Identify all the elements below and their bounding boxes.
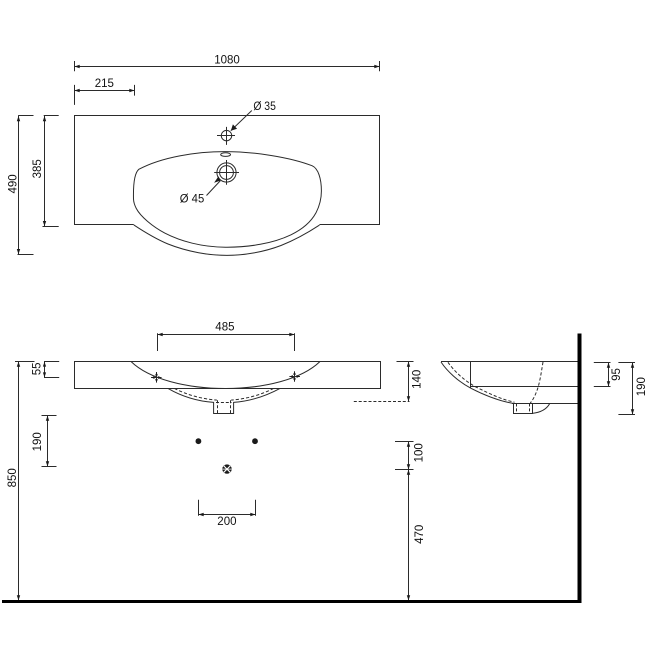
svg-text:215: 215 [95,78,114,90]
svg-text:485: 485 [215,322,234,334]
svg-text:200: 200 [217,516,236,528]
svg-text:Ø 35: Ø 35 [253,101,276,113]
svg-text:190: 190 [636,377,648,396]
svg-text:55: 55 [32,363,44,376]
svg-text:850: 850 [7,468,19,487]
svg-text:95: 95 [611,368,623,381]
svg-text:490: 490 [7,174,19,193]
svg-text:140: 140 [412,370,424,389]
svg-text:190: 190 [32,432,44,451]
svg-text:470: 470 [414,525,426,544]
svg-text:1080: 1080 [214,54,240,66]
svg-text:Ø 45: Ø 45 [180,194,205,206]
svg-text:385: 385 [32,159,44,178]
svg-text:100: 100 [414,443,426,462]
